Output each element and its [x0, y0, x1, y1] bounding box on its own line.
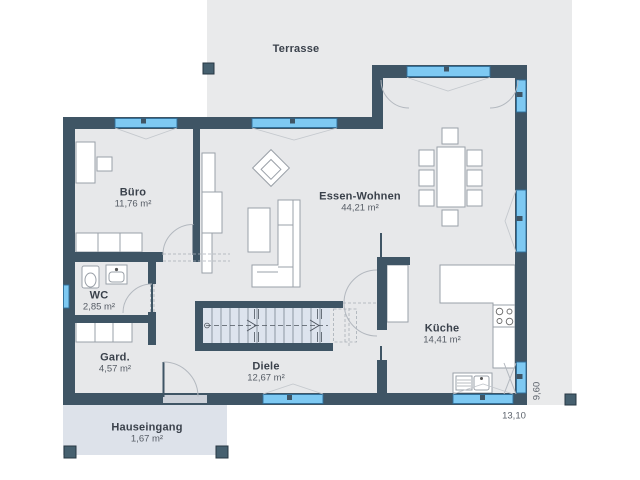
- dimension-depth: 9,60: [532, 382, 543, 401]
- desk: [76, 142, 95, 183]
- dining-chair: [442, 210, 458, 226]
- entry-door-jamb: [158, 393, 163, 405]
- dining-chair: [419, 190, 434, 206]
- coffee-table: [248, 208, 270, 252]
- dining-chair: [467, 170, 482, 186]
- dimension-width: 13,10: [502, 411, 526, 422]
- room-area: 1,67 m²: [111, 434, 182, 445]
- porch-post: [64, 446, 76, 458]
- room-area: 12,67 m²: [247, 373, 285, 384]
- window: [64, 285, 70, 308]
- room-name: Essen-Wohnen: [319, 191, 401, 203]
- room-area: 44,21 m²: [319, 203, 401, 214]
- room-label-diele: Diele 12,67 m²: [247, 361, 285, 384]
- stove: [493, 305, 515, 327]
- floor-plan: Terrasse Büro 11,76 m² Essen-Wohnen 44,2…: [0, 0, 640, 480]
- room-label-essen-wohnen: Essen-Wohnen 44,21 m²: [319, 191, 401, 214]
- wall-stair-bottom: [195, 343, 333, 351]
- floor-plan-drawing: [0, 0, 640, 480]
- terrace-post: [203, 63, 214, 74]
- wall-wc-bottom: [75, 315, 156, 323]
- entry-door-jamb: [207, 393, 212, 405]
- wall-buero-bottom: [75, 252, 163, 262]
- wall-left: [63, 117, 75, 405]
- room-label-terrasse: Terrasse: [273, 43, 320, 55]
- window: [263, 395, 323, 404]
- wall-kitchen-top-stub: [377, 257, 410, 265]
- room-label-hauseingang: Hauseingang 1,67 m²: [111, 422, 182, 445]
- toilet: [82, 266, 99, 288]
- fridge-cabinet: [387, 265, 408, 322]
- wall-stair-top: [195, 301, 343, 308]
- wardrobe-shelf: [76, 322, 132, 342]
- office-chair: [97, 157, 112, 171]
- office-shelf: [76, 233, 142, 252]
- wall-kitchen-vertical: [377, 257, 387, 330]
- room-label-buero: Büro 11,76 m²: [115, 187, 152, 210]
- room-label-wc: WC 2,85 m²: [83, 290, 115, 313]
- wall-kitchen-lower-stub: [377, 360, 387, 400]
- dining-chair: [467, 190, 482, 206]
- dining-chair: [419, 170, 434, 186]
- dining-table: [437, 147, 465, 207]
- room-area: 11,76 m²: [115, 199, 152, 210]
- room-area: 14,41 m²: [423, 335, 461, 346]
- room-name: Küche: [423, 323, 461, 335]
- room-label-kueche: Küche 14,41 m²: [423, 323, 461, 346]
- terrace-post: [565, 394, 576, 405]
- room-name: Terrasse: [273, 43, 320, 55]
- room-label-garderobe: Gard. 4,57 m²: [99, 352, 131, 375]
- porch-post: [216, 446, 228, 458]
- dining-chair: [442, 128, 458, 144]
- dining-chair: [419, 150, 434, 166]
- room-name: Diele: [247, 361, 285, 373]
- room-area: 4,57 m²: [99, 364, 131, 375]
- wall-wc-right-upper: [148, 262, 156, 284]
- room-area: 2,85 m²: [83, 302, 115, 313]
- room-name: Büro: [115, 187, 152, 199]
- room-name: WC: [83, 290, 115, 302]
- entry-threshold: [163, 395, 207, 403]
- room-name: Hauseingang: [111, 422, 182, 434]
- kitchen-sink-unit: [453, 373, 492, 393]
- dining-chair: [467, 150, 482, 166]
- wash-basin: [106, 265, 127, 284]
- room-name: Gard.: [99, 352, 131, 364]
- wall-stair-left-cap: [195, 301, 203, 351]
